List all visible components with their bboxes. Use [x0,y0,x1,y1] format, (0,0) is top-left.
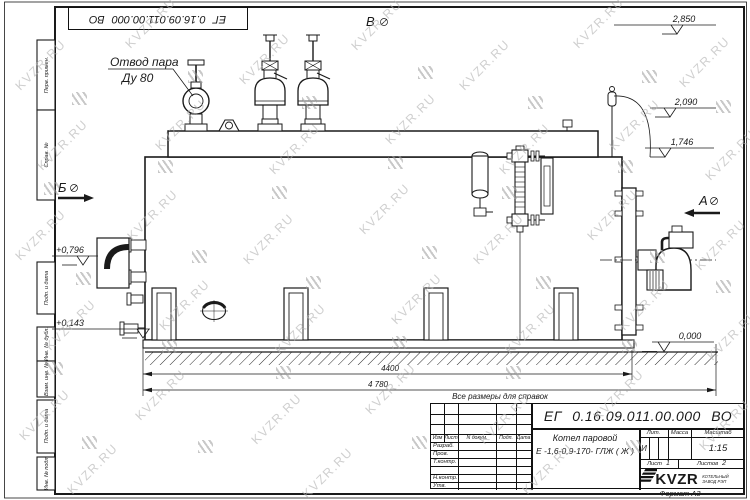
margin-label-inv-podl: Инв. № подл. [44,456,50,490]
tb-mass-label: Масса [668,428,691,437]
top-left-doc-number-stamp: ЕГ 0.16.09.011.00.000 ВО [68,7,248,30]
tb-col-list: Лист [444,434,458,442]
tb-scale-value: 1:15 [691,437,745,459]
dim-4400-label: 4400 [381,364,399,373]
tb-logo-subtext: КОТЕЛЬНЫЙ ЗАВОД РЭП [702,474,728,485]
dim-4780-label: 4 780 [368,380,389,389]
margin-label-inv-dubl: Инв. № дубл. [44,327,50,361]
steam-outlet-text-2: Ду 80 [120,71,154,85]
margin-label-vzam-inv: Взам. инв. № [44,362,50,396]
steam-outlet-valve [183,60,209,131]
tb-sheet-cell: Лист 1 [639,459,678,468]
level-0796: +0,796 [52,245,98,265]
tb-line [431,424,531,425]
tb-line [658,437,659,459]
level-0000: 0,000 [642,331,714,352]
margin-label-sprav-no: Справ. № [44,142,50,167]
level-1746-label: 1,746 [671,137,694,147]
lifting-lug [219,120,239,131]
tb-row-nkontr: Н.контр. [433,474,459,482]
level-2090-label: 2,090 [674,97,698,107]
tb-row-razrab: Разраб. [433,442,459,450]
tb-col-sign: Подп. [496,434,516,442]
steam-outlet-label: Отвод пара Ду 80 [108,55,193,96]
level-2850-label: 2,850 [672,14,696,24]
tb-sheet-value: 1 [666,460,670,467]
tb-name-line2: Е -1,6-0,9-170- ГЛЖ ( Ж ) [531,444,639,457]
margin-label-podp-i-data-2: Подп. и дата [44,409,50,443]
tb-sheets-value: 2 [722,460,726,467]
tb-line [516,404,517,490]
level-1746: 1,746 [645,137,714,157]
tb-row-prov: Пров. [433,450,459,458]
tb-sheets-label: Листов [697,461,718,467]
tb-name-line1: Котел паровой [531,431,639,444]
safety-valve-1 [255,35,287,131]
tb-sheets-cell: Листов 2 [678,459,745,468]
format-label: Формат А3 [600,488,750,499]
margin-label-podp-i-data-1: Подп. и дата [44,271,50,305]
safety-valve-2 [298,35,330,131]
tb-row-utv: Утв. [433,482,459,490]
steam-outlet-text-1: Отвод пара [110,55,179,69]
title-block: ЕГ 0.16.09.011.00.000 ВО Котел паровой Е… [430,403,744,489]
margin-label-perv-primen: Перв. примен. [44,57,50,94]
tb-lit-label: Лит. [639,428,668,437]
tb-logo-cell: KVZR КОТЕЛЬНЫЙ ЗАВОД РЭП [639,468,745,490]
level-0000-label: 0,000 [679,331,702,341]
tb-col-date: Дата [516,434,531,442]
level-2090: 2,090 [650,97,716,117]
tb-line [431,414,531,415]
tb-lit-value: И [639,437,649,459]
kvzr-coil-icon [639,468,657,483]
left-smokebox-fittings [97,238,146,335]
reference-note: Все размеры для справок [452,392,549,401]
tb-sheet-label: Лист [647,461,662,467]
drawing-sheet: Перв. примен. Справ. № Подп. и дата Инв.… [0,0,750,500]
level-0796-label: +0,796 [56,245,84,255]
tb-doc-number: ЕГ 0.16.09.011.00.000 ВО [531,404,745,428]
tb-scale-label: Масштаб [691,428,745,437]
tb-row-tkontr: Т.контр. [433,458,459,466]
tb-logo-sub2: ЗАВОД РЭП [702,479,728,484]
level-2850: 2,850 [614,14,716,34]
tb-logo-text: KVZR [655,471,698,488]
view-b-label: Б [58,180,67,195]
tb-col-doc: N докум. [458,434,496,442]
view-v-label: В [366,14,375,29]
tb-line [431,466,531,467]
tb-col-izm: Изм [431,434,444,442]
top-left-doc-number-text: ЕГ 0.16.09.011.00.000 ВО [89,13,226,25]
tb-line [496,404,497,490]
level-0143-label: +0,143 [56,318,84,328]
view-a-label: А [698,193,708,208]
